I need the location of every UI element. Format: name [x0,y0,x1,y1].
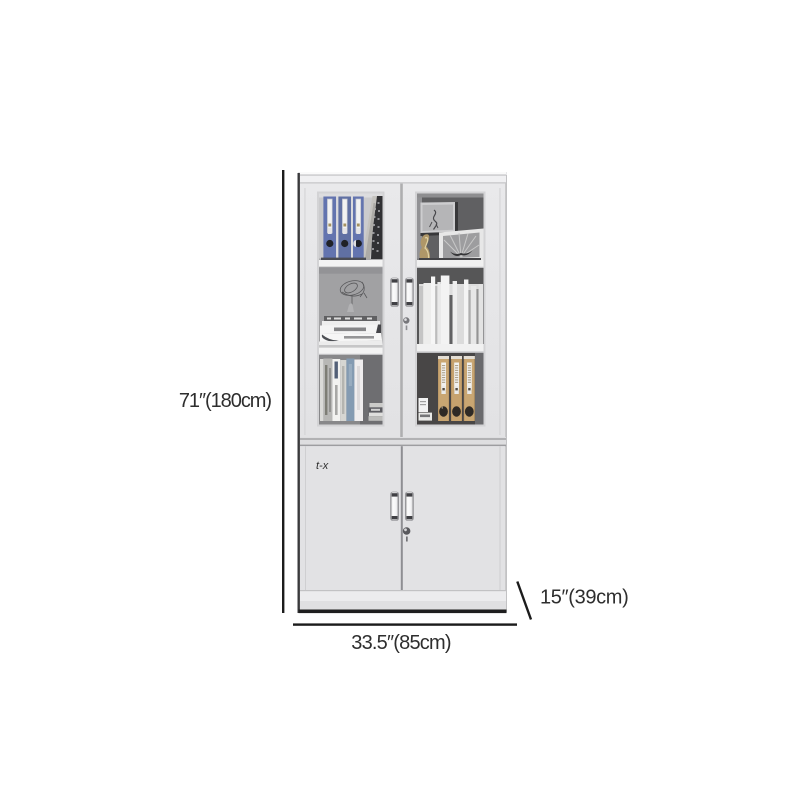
svg-text:t-x: t-x [316,460,329,472]
svg-text:33.5″(85cm): 33.5″(85cm) [351,632,451,654]
svg-text:15″(39cm): 15″(39cm) [540,587,628,609]
svg-text:71″(180cm): 71″(180cm) [179,390,272,412]
